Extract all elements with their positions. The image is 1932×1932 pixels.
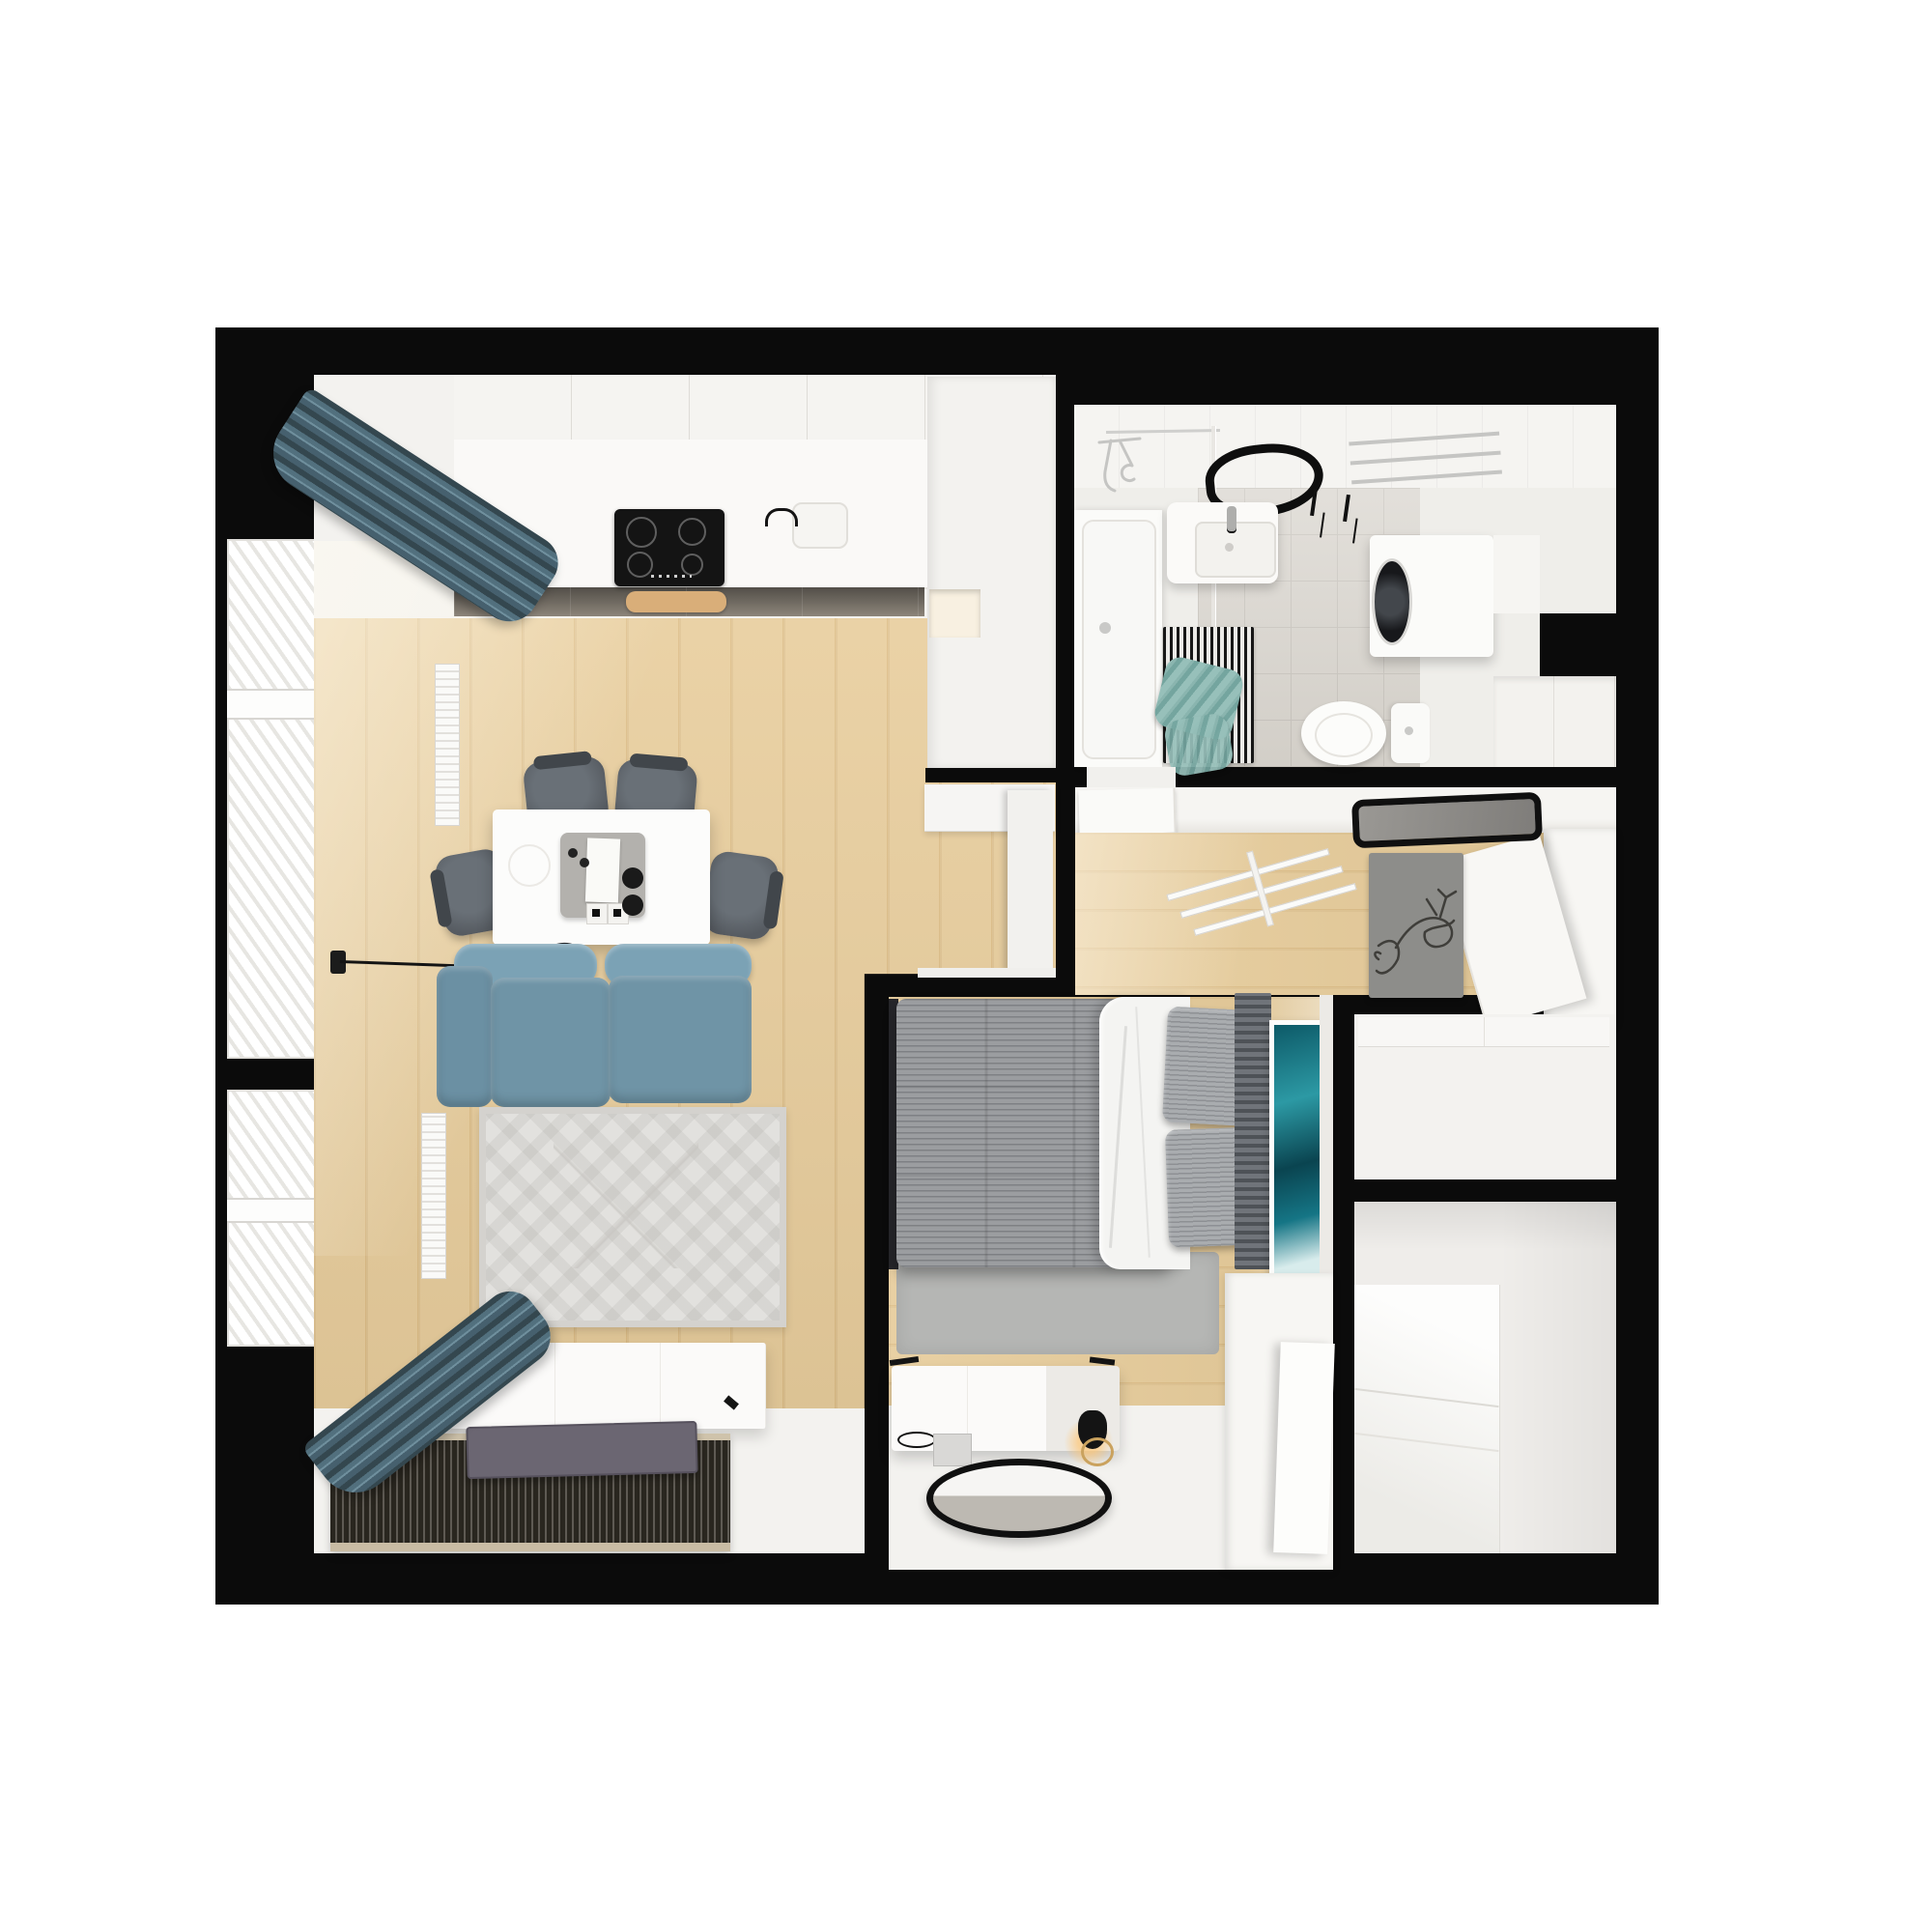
floor-plan-stage xyxy=(0,0,1932,1932)
window-bottom-mullion xyxy=(227,1198,314,1223)
headboard-slat-panel xyxy=(1235,993,1271,1269)
pepper-mill xyxy=(622,895,643,916)
bath-low-cabinet xyxy=(1493,676,1616,767)
cooktop-controls xyxy=(651,575,692,578)
magazine xyxy=(933,1434,972,1466)
deer-line-art-icon xyxy=(1369,853,1463,998)
toilet-seat xyxy=(1315,713,1373,757)
radiator-bottom xyxy=(421,1113,446,1279)
eyeglasses-icon xyxy=(897,1432,936,1448)
flush-button xyxy=(1405,726,1413,735)
sofa-armrest xyxy=(437,966,493,1107)
storage-right-shade xyxy=(1499,1202,1616,1553)
island-plate xyxy=(508,844,551,887)
rug-diamond-pattern xyxy=(554,1143,698,1268)
sink-faucet xyxy=(765,508,798,526)
window-top-mullion xyxy=(227,689,314,720)
pepper-mill xyxy=(622,867,643,889)
open-door-living-hallway xyxy=(1008,790,1053,972)
wall-notch xyxy=(1540,613,1616,676)
toilet xyxy=(1301,697,1431,767)
induction-cooktop xyxy=(614,509,724,586)
corridor-wall-stub xyxy=(925,768,1056,782)
bath-counter-strip xyxy=(1493,535,1540,613)
burner-icon xyxy=(626,517,657,548)
shower-set-icon xyxy=(1092,433,1159,510)
bathtub-inner xyxy=(1082,520,1156,759)
living-area-rug xyxy=(479,1107,786,1327)
washing-machine xyxy=(1370,535,1493,657)
vanity-faucet xyxy=(1227,506,1236,531)
round-floor-mirror xyxy=(926,1459,1112,1538)
bedroom-wardrobe-open-door xyxy=(1273,1342,1335,1554)
dresser-bench xyxy=(892,1366,1120,1451)
kitchen-sink xyxy=(792,502,848,549)
bathroom-door-opening xyxy=(1087,767,1176,788)
towel-ladder xyxy=(1349,432,1502,495)
cutting-board xyxy=(626,591,726,612)
basin xyxy=(1195,522,1276,578)
radiator-top xyxy=(435,664,460,826)
tub-drain xyxy=(1099,622,1111,634)
leaning-clothes-rack xyxy=(1164,811,1357,927)
spice-jar xyxy=(586,903,608,924)
pantry-column xyxy=(927,377,1056,768)
shoe-console xyxy=(1358,1017,1609,1047)
kitchen-island xyxy=(493,810,710,945)
washer-door xyxy=(1372,558,1412,645)
burner-icon xyxy=(627,552,653,578)
sofa xyxy=(437,941,763,1117)
sofa-seat xyxy=(491,978,611,1107)
sofa-seat xyxy=(609,976,752,1103)
island-board xyxy=(585,838,620,902)
storage-bright-door-panel xyxy=(1354,1285,1500,1553)
open-bathroom-door xyxy=(1078,788,1176,836)
tv-panel-flat xyxy=(466,1421,697,1479)
pantry-niche xyxy=(929,589,980,638)
vanity-sink xyxy=(1167,502,1278,583)
burner-icon xyxy=(681,554,703,576)
window-top xyxy=(227,539,318,1059)
black-frame-mirror xyxy=(1351,792,1543,849)
burner-icon xyxy=(678,518,706,546)
deer-rug xyxy=(1369,853,1463,998)
bar-stool xyxy=(701,850,780,942)
bedroom-wall-sliver xyxy=(1320,995,1333,1275)
corridor-baseboard xyxy=(918,968,1056,978)
condiment-bottle xyxy=(580,858,589,867)
condiment-bottle xyxy=(568,848,578,858)
lamp-ring xyxy=(1081,1437,1114,1466)
bathtub xyxy=(1074,510,1162,767)
basin-drain xyxy=(1225,543,1234,552)
